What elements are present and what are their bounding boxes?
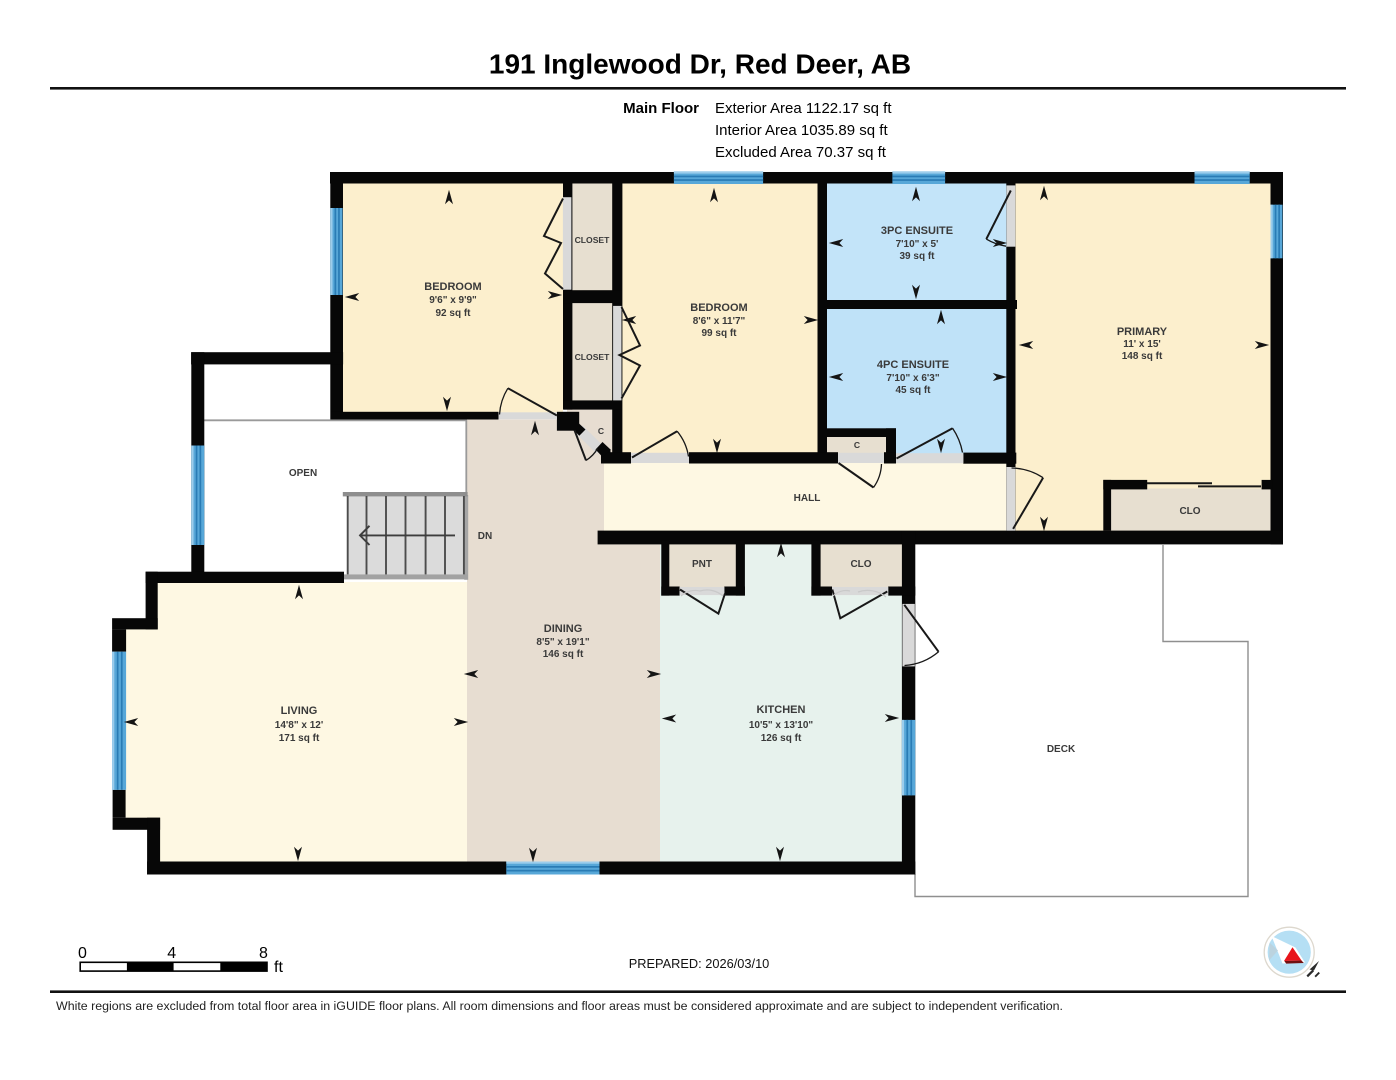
svg-text:3PC ENSUITE: 3PC ENSUITE [881, 225, 953, 237]
svg-text:7'10" x 5': 7'10" x 5' [896, 239, 939, 250]
svg-text:Main Floor: Main Floor [623, 100, 699, 117]
svg-text:11' x 15': 11' x 15' [1123, 339, 1161, 350]
svg-text:CLO: CLO [850, 559, 871, 570]
svg-text:CLOSET: CLOSET [575, 352, 611, 362]
svg-text:C: C [598, 426, 604, 436]
svg-text:8'6" x 11'7": 8'6" x 11'7" [693, 316, 746, 327]
svg-text:8: 8 [259, 945, 268, 962]
svg-text:4PC ENSUITE: 4PC ENSUITE [877, 359, 949, 371]
svg-text:Excluded Area 70.37 sq ft: Excluded Area 70.37 sq ft [715, 144, 887, 161]
svg-text:8'5" x 19'1": 8'5" x 19'1" [536, 637, 589, 648]
svg-text:DECK: DECK [1047, 744, 1076, 755]
svg-text:45 sq ft: 45 sq ft [895, 385, 931, 396]
svg-text:4: 4 [167, 945, 176, 962]
svg-text:171 sq ft: 171 sq ft [279, 733, 320, 744]
svg-text:C: C [854, 440, 860, 450]
svg-text:0: 0 [78, 945, 87, 962]
svg-text:PREPARED: 2026/03/10: PREPARED: 2026/03/10 [629, 956, 770, 971]
svg-text:14'8" x 12': 14'8" x 12' [275, 720, 323, 731]
svg-text:DN: DN [478, 531, 492, 542]
svg-text:Exterior Area 1122.17 sq ft: Exterior Area 1122.17 sq ft [715, 100, 892, 117]
svg-text:99 sq ft: 99 sq ft [701, 328, 737, 339]
svg-text:KITCHEN: KITCHEN [757, 704, 806, 716]
svg-text:DINING: DINING [544, 623, 583, 635]
svg-text:White regions are excluded fro: White regions are excluded from total fl… [56, 999, 1063, 1013]
svg-text:PRIMARY: PRIMARY [1117, 326, 1168, 338]
svg-text:ft: ft [274, 959, 283, 976]
svg-text:BEDROOM: BEDROOM [424, 281, 481, 293]
svg-text:CLOSET: CLOSET [575, 235, 611, 245]
svg-text:92 sq ft: 92 sq ft [435, 308, 471, 319]
svg-text:191 Inglewood Dr, Red Deer, AB: 191 Inglewood Dr, Red Deer, AB [489, 49, 911, 80]
svg-text:10'5" x 13'10": 10'5" x 13'10" [749, 720, 814, 731]
svg-text:BEDROOM: BEDROOM [690, 302, 747, 314]
svg-text:HALL: HALL [794, 493, 821, 504]
svg-text:Interior Area 1035.89 sq ft: Interior Area 1035.89 sq ft [715, 122, 888, 139]
svg-text:146 sq ft: 146 sq ft [543, 649, 584, 660]
svg-text:148 sq ft: 148 sq ft [1122, 351, 1163, 362]
svg-text:39 sq ft: 39 sq ft [899, 251, 935, 262]
svg-text:126 sq ft: 126 sq ft [761, 733, 802, 744]
svg-text:LIVING: LIVING [281, 705, 318, 717]
svg-text:CLO: CLO [1179, 506, 1200, 517]
svg-text:PNT: PNT [692, 559, 712, 570]
svg-text:7'10" x 6'3": 7'10" x 6'3" [886, 373, 939, 384]
svg-text:OPEN: OPEN [289, 468, 317, 479]
svg-text:9'6" x 9'9": 9'6" x 9'9" [429, 295, 477, 306]
